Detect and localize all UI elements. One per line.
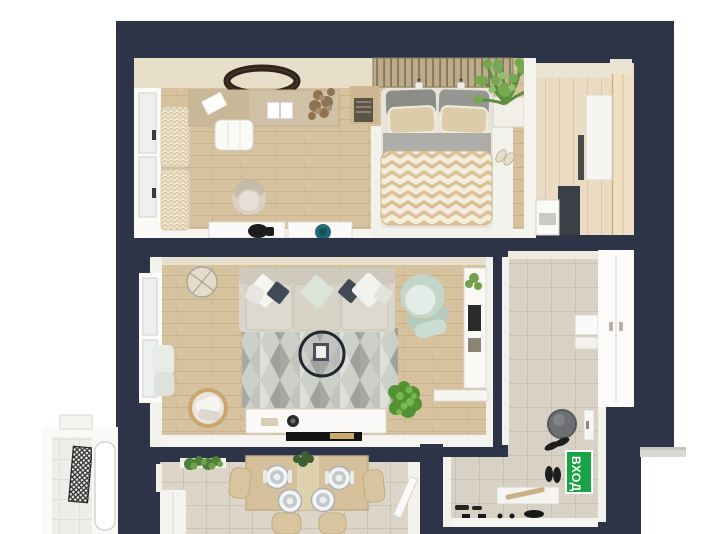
svg-text:ВХОД: ВХОД bbox=[569, 456, 583, 492]
